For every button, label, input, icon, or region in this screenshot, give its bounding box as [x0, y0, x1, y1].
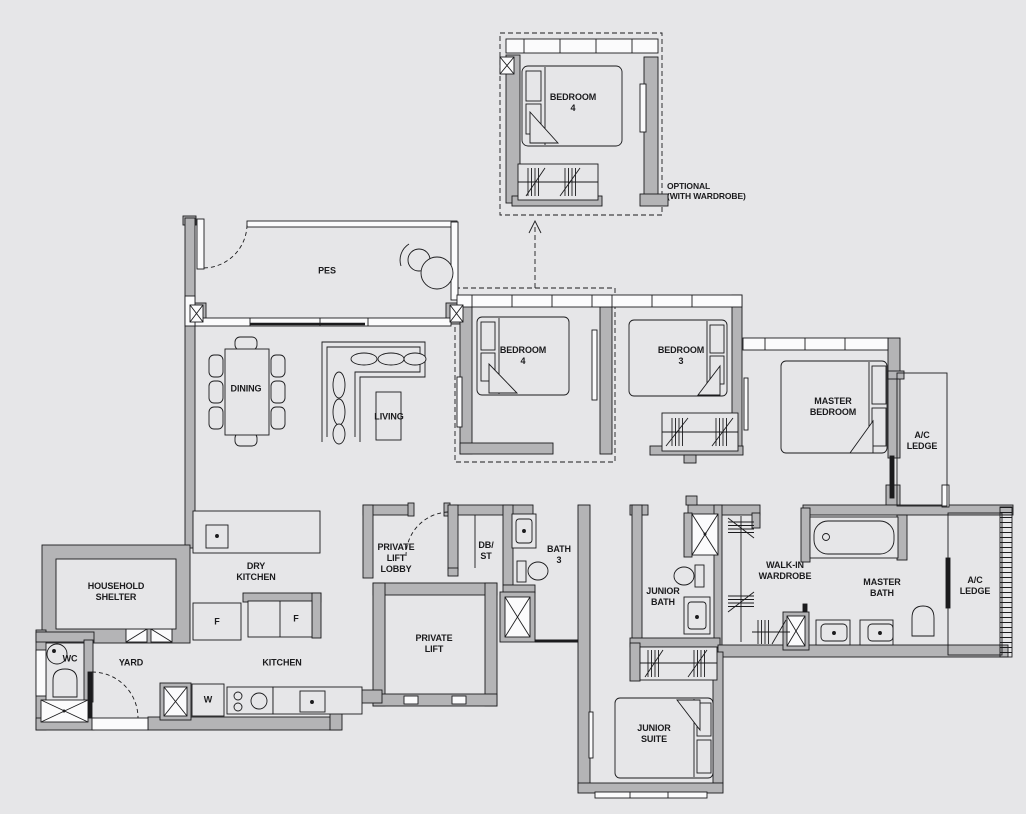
room-label-junior-bath: JUNIOR BATH: [646, 586, 679, 608]
room-label-private-lift: PRIVATE LIFT: [416, 633, 453, 655]
xbox-icon: [500, 57, 514, 74]
xbox-icon: [190, 305, 203, 322]
room-label-wc: WC: [63, 654, 78, 665]
floor-trap-icon: [160, 683, 191, 720]
floor-plan: BEDROOM 4 OPTIONAL (WITH WARDROBE) PES D…: [0, 0, 1026, 814]
room-label-optional-bedroom4: BEDROOM 4: [550, 92, 596, 114]
sink-icon: [684, 597, 710, 634]
room-label-dining: DINING: [231, 384, 262, 395]
room-label-kitchen: KITCHEN: [262, 658, 301, 669]
fridge-label: F: [214, 617, 219, 628]
room-label-master-bedroom: MASTER BEDROOM: [810, 396, 856, 418]
sink-icon: [512, 514, 536, 548]
sink-icon: [816, 620, 850, 645]
sofa-icon: [322, 342, 426, 444]
room-label-walk-in-wardrobe: WALK-IN WARDROBE: [759, 560, 812, 582]
wardrobe-icon: [662, 413, 738, 451]
room-label-private-lift-lobby: PRIVATE LIFT LOBBY: [378, 542, 415, 574]
fridge-icon: [248, 601, 312, 637]
room-label-bedroom4: BEDROOM 4: [500, 345, 546, 367]
xbox-icon: [450, 305, 463, 322]
toilet-icon: [53, 669, 77, 697]
shower-icon: [692, 514, 718, 555]
stove-icon: [227, 687, 273, 714]
toilet-icon: [912, 606, 934, 636]
room-label-living: LIVING: [374, 412, 403, 423]
island-counter-icon: [193, 511, 320, 553]
toilet-icon: [517, 561, 548, 582]
outdoor-table-icon: [400, 244, 453, 289]
room-label-yard: YARD: [119, 658, 143, 669]
lift-shaft-icon: [500, 592, 535, 642]
sink-icon: [860, 620, 893, 645]
bathtub-icon: [810, 517, 898, 558]
room-label-ac-ledge-upper: A/C LEDGE: [907, 430, 938, 452]
room-label-ac-ledge-lower: A/C LEDGE: [960, 575, 991, 597]
shower-icon: [41, 700, 88, 722]
room-label-household-shelter: HOUSEHOLD SHELTER: [88, 581, 145, 603]
fridge-label: F: [293, 614, 298, 625]
room-label-junior-suite: JUNIOR SUITE: [637, 723, 670, 745]
room-label-db-st: DB/ ST: [478, 540, 493, 562]
room-label-pes: PES: [318, 266, 336, 277]
wardrobe-icon: [518, 164, 598, 200]
counter-icon: [273, 687, 362, 714]
wardrobe-icon: [640, 647, 717, 680]
room-label-dry-kitchen: DRY KITCHEN: [236, 561, 275, 583]
room-label-bath3: BATH 3: [547, 544, 571, 566]
washer-label: W: [204, 695, 212, 706]
duct-shaft-icon: [783, 612, 809, 650]
floor-plan-drawing: [0, 0, 1026, 814]
room-label-master-bath: MASTER BATH: [863, 577, 900, 599]
optional-note: OPTIONAL (WITH WARDROBE): [667, 181, 746, 201]
toilet-icon: [674, 565, 704, 587]
room-label-bedroom3: BEDROOM 3: [658, 345, 704, 367]
